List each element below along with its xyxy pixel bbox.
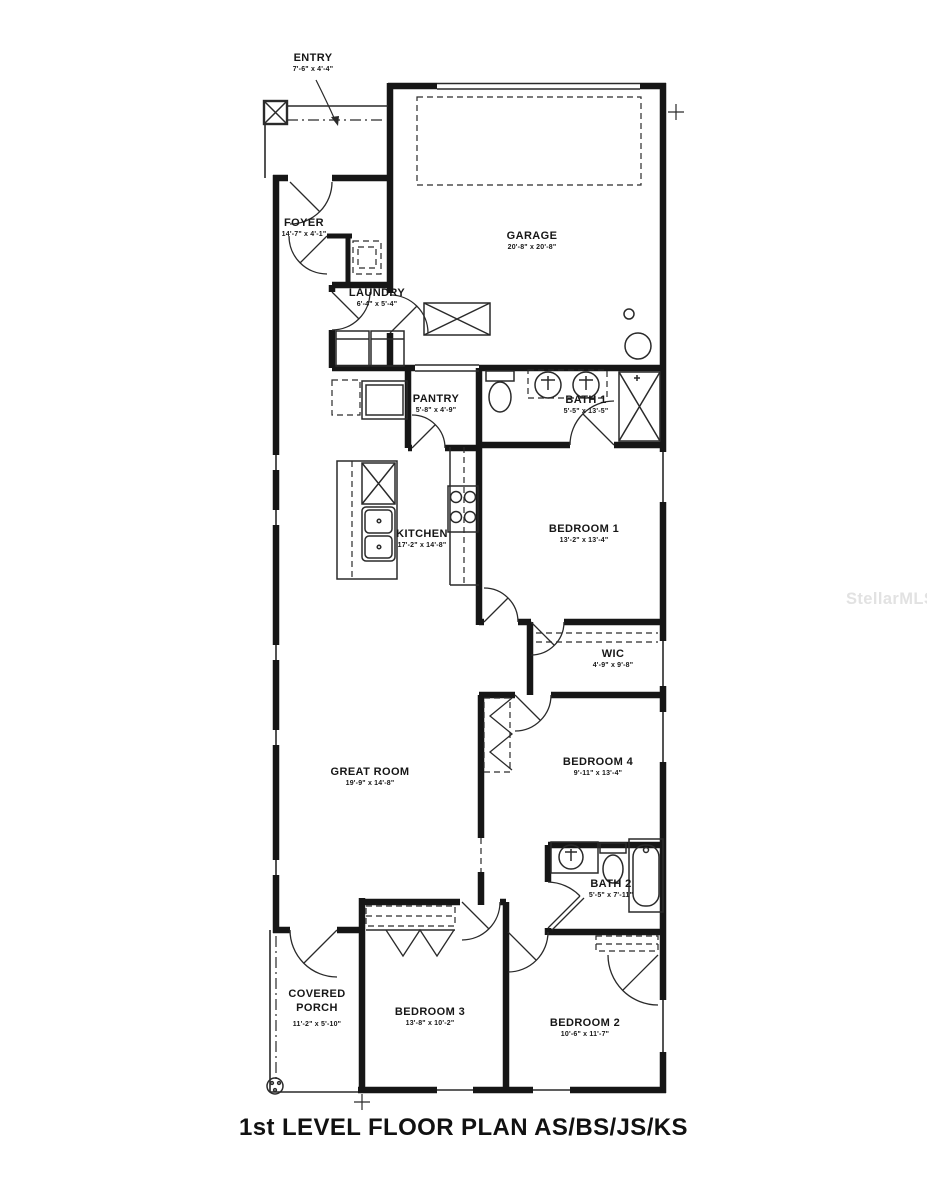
bedroom3-bifold-doors	[386, 930, 454, 956]
room-dims: 4'-9" x 9'-8"	[593, 662, 634, 671]
range-icon	[448, 486, 478, 532]
room-label-bath2: BATH 25'-5" x 7'-11"	[589, 878, 633, 901]
plus-mark-top-icon	[668, 104, 684, 120]
bedroom4-bifold-doors	[490, 698, 512, 770]
dash-dot-lines	[276, 120, 386, 1082]
room-label-entry: ENTRY7'-6" x 4'-4"	[293, 52, 334, 75]
room-label-great-room: GREAT ROOM19'-9" x 14'-8"	[331, 766, 410, 789]
room-dims: 5'-8" x 4'-9"	[413, 407, 459, 416]
room-name: BEDROOM 1	[549, 523, 619, 537]
room-label-covered-porch: COVERED PORCH11'-2" x 5'-10"	[274, 988, 360, 1029]
room-label-kitchen: KITCHEN17'-2" x 14'-8"	[396, 528, 448, 551]
room-name: GREAT ROOM	[331, 766, 410, 780]
room-name: BATH 2	[589, 878, 633, 892]
room-name: BEDROOM 2	[550, 1017, 620, 1031]
bath2-toilet-icon	[600, 843, 626, 883]
room-label-garage: GARAGE20'-8" x 20'-8"	[507, 230, 558, 253]
plus-mark-bottom-icon	[354, 1094, 370, 1110]
room-dims: 20'-8" x 20'-8"	[507, 244, 558, 253]
room-dims: 10'-6" x 11'-7"	[550, 1031, 620, 1040]
room-label-bath1: BATH 15'-5" x 13'-5"	[564, 394, 609, 417]
entry-leader-line	[316, 80, 339, 126]
water-heater-icon	[625, 333, 651, 359]
watermark: StellarMLS	[846, 590, 927, 609]
room-name: ENTRY	[293, 52, 334, 66]
plan-title: 1st LEVEL FLOOR PLAN AS/BS/JS/KS	[0, 1114, 927, 1142]
room-dims: 14'-7" x 4'-1"	[282, 231, 327, 240]
room-label-bedroom4: BEDROOM 49'-11" x 13'-4"	[563, 756, 633, 779]
room-name: LAUNDRY	[349, 287, 405, 301]
room-name: WIC	[593, 648, 634, 662]
bath1-shower-icon	[619, 372, 660, 441]
refrigerator-icon	[362, 381, 407, 419]
room-label-bedroom1: BEDROOM 113'-2" x 13'-4"	[549, 523, 619, 546]
room-dims: 17'-2" x 14'-8"	[396, 542, 448, 551]
room-label-pantry: PANTRY5'-8" x 4'-9"	[413, 393, 459, 416]
garage-hvac-pad-icon	[424, 303, 490, 335]
kitchen-sink-icon	[362, 507, 395, 561]
room-dims: 5'-5" x 7'-11"	[589, 892, 633, 901]
floor-plan-page: ENTRY7'-6" x 4'-4" FOYER14'-7" x 4'-1" G…	[0, 0, 927, 1200]
room-dims: 7'-6" x 4'-4"	[293, 66, 334, 75]
room-dims: 5'-5" x 13'-5"	[564, 408, 609, 417]
room-dims: 13'-2" x 13'-4"	[549, 537, 619, 546]
bath1-toilet-icon	[486, 371, 514, 412]
room-name: KITCHEN	[396, 528, 448, 542]
washer-dryer-icon	[336, 331, 404, 366]
room-name: BATH 1	[564, 394, 609, 408]
room-name: BEDROOM 3	[395, 1006, 465, 1020]
room-name: PANTRY	[413, 393, 459, 407]
room-dims: 11'-2" x 5'-10"	[274, 1021, 360, 1030]
room-dims: 19'-9" x 14'-8"	[331, 780, 410, 789]
room-label-laundry: LAUNDRY6'-4" x 5'-4"	[349, 287, 405, 310]
bath2-tub-icon	[629, 839, 663, 912]
room-label-wic: WIC4'-9" x 9'-8"	[593, 648, 634, 671]
room-name: FOYER	[282, 217, 327, 231]
room-label-foyer: FOYER14'-7" x 4'-1"	[282, 217, 327, 240]
room-label-bedroom2: BEDROOM 210'-6" x 11'-7"	[550, 1017, 620, 1040]
room-dims: 13'-8" x 10'-2"	[395, 1020, 465, 1029]
room-label-bedroom3: BEDROOM 313'-8" x 10'-2"	[395, 1006, 465, 1029]
room-name: BEDROOM 4	[563, 756, 633, 770]
room-name: COVERED PORCH	[274, 988, 360, 1016]
dishwasher-icon	[362, 463, 395, 504]
room-dims: 6'-4" x 5'-4"	[349, 301, 405, 310]
entry-post-icon	[264, 101, 287, 124]
room-dims: 9'-11" x 13'-4"	[563, 770, 633, 779]
room-name: GARAGE	[507, 230, 558, 244]
garage-small-circle-icon	[624, 309, 634, 319]
